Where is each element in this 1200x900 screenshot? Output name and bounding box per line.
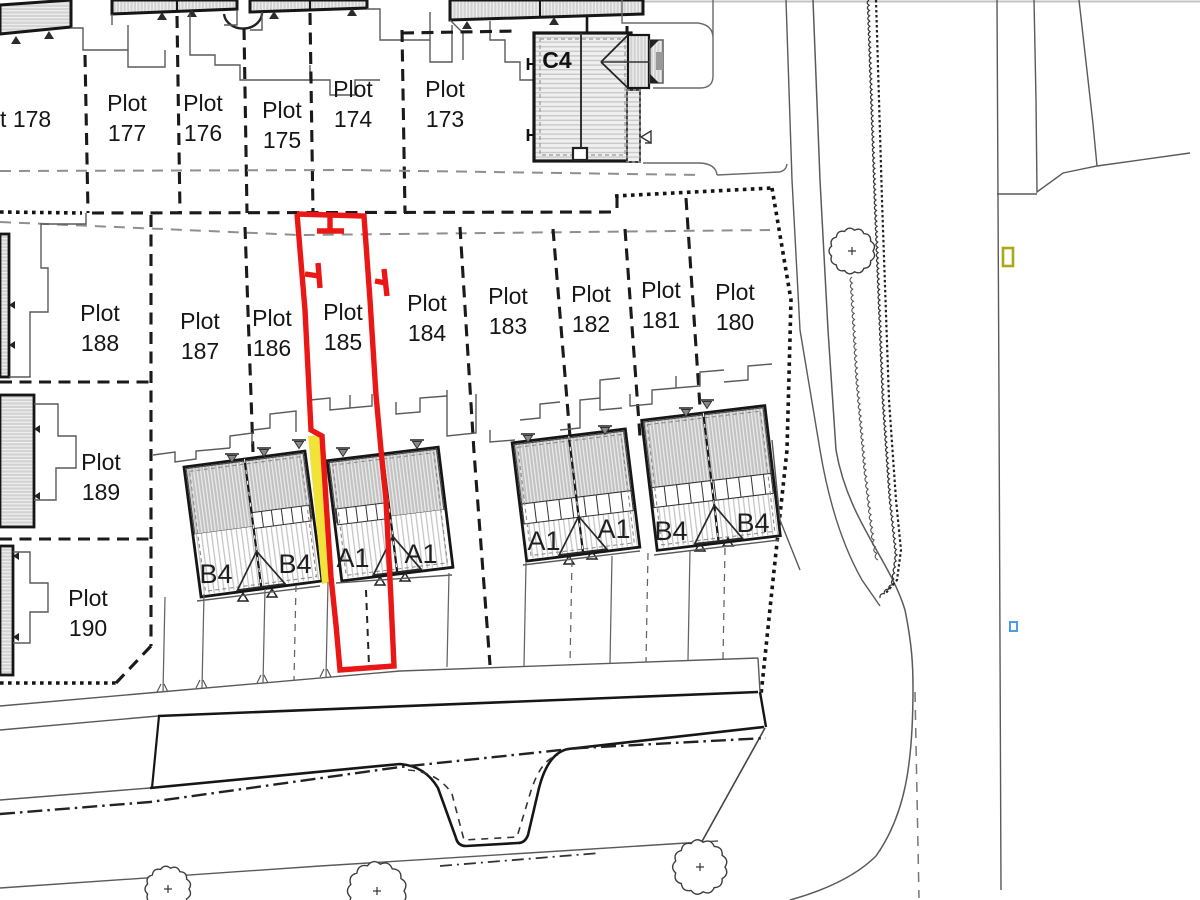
svg-text:Plot: Plot <box>488 283 528 309</box>
svg-text:187: 187 <box>181 338 219 364</box>
svg-text:Plot: Plot <box>180 308 220 334</box>
svg-text:Plot: Plot <box>68 585 108 611</box>
svg-text:B4: B4 <box>278 549 311 579</box>
svg-text:173: 173 <box>426 106 464 132</box>
svg-text:A1: A1 <box>404 539 437 569</box>
svg-text:Plot: Plot <box>641 277 681 303</box>
svg-text:Plot: Plot <box>81 449 121 475</box>
svg-text:Plot: Plot <box>107 90 147 116</box>
svg-text:Plot: Plot <box>425 76 465 102</box>
svg-text:176: 176 <box>184 120 222 146</box>
svg-text:184: 184 <box>408 320 447 346</box>
svg-text:B4: B4 <box>736 508 769 538</box>
svg-text:188: 188 <box>81 330 119 356</box>
svg-text:Plot: Plot <box>80 300 120 326</box>
svg-text:189: 189 <box>82 479 120 505</box>
svg-text:182: 182 <box>572 311 610 337</box>
svg-text:190: 190 <box>69 615 107 641</box>
svg-text:174: 174 <box>334 106 373 132</box>
svg-text:Plot: Plot <box>407 290 447 316</box>
svg-text:Plot: Plot <box>715 279 755 305</box>
svg-text:A1: A1 <box>527 526 560 556</box>
svg-text:A1: A1 <box>597 514 630 544</box>
svg-text:Plot: Plot <box>571 281 611 307</box>
svg-text:Plot: Plot <box>183 90 223 116</box>
svg-text:Plot: Plot <box>323 299 363 325</box>
svg-text:175: 175 <box>263 127 301 153</box>
svg-text:Plot: Plot <box>262 97 302 123</box>
svg-text:180: 180 <box>716 309 754 335</box>
svg-text:C4: C4 <box>542 47 572 73</box>
svg-text:Plot: Plot <box>252 305 292 331</box>
svg-text:B4: B4 <box>199 559 232 589</box>
svg-text:186: 186 <box>253 335 291 361</box>
svg-text:Plot: Plot <box>333 76 373 102</box>
svg-text:177: 177 <box>108 120 146 146</box>
svg-text:Plot 178: Plot 178 <box>0 106 51 132</box>
svg-text:B4: B4 <box>654 516 687 546</box>
svg-text:A1: A1 <box>336 543 369 573</box>
svg-text:181: 181 <box>642 307 680 333</box>
svg-text:185: 185 <box>324 329 362 355</box>
svg-text:183: 183 <box>489 313 527 339</box>
